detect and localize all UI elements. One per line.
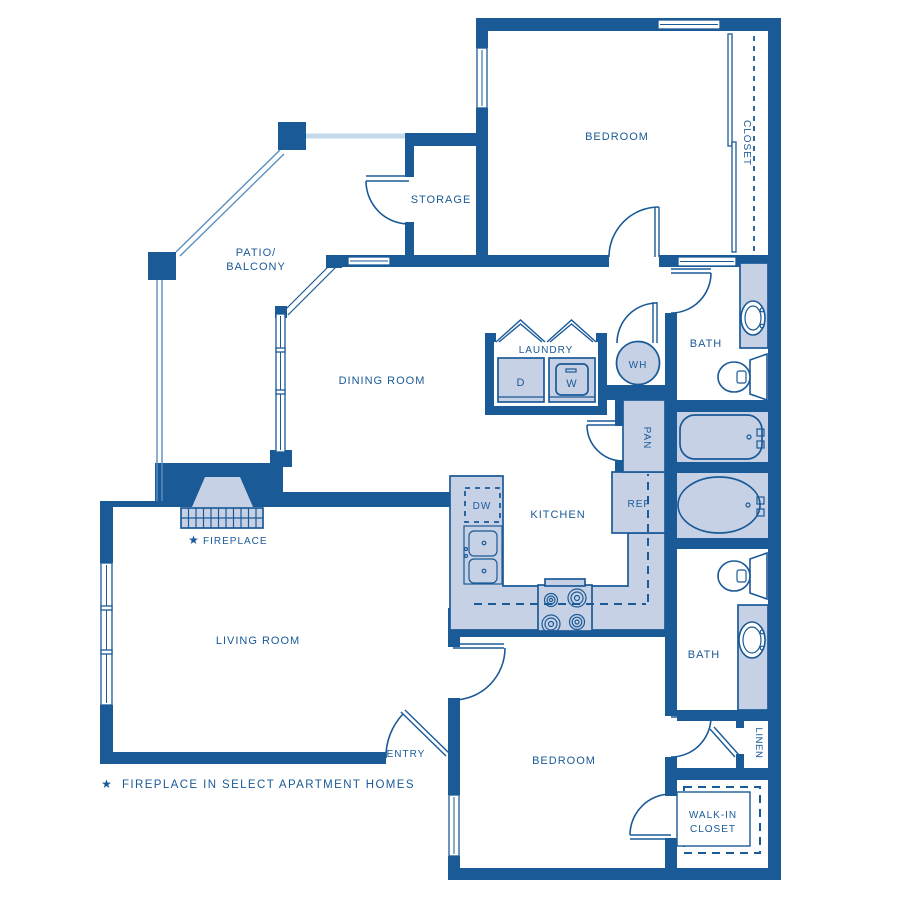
label-patio-line1: PATIO/ [236, 247, 276, 259]
window-storage [348, 257, 390, 265]
label-water-heater: WH [629, 360, 648, 371]
door-hall [617, 302, 657, 343]
patio-post [148, 252, 176, 280]
vanity-upper [740, 263, 768, 348]
footnote-text: FIREPLACE IN SELECT APARTMENT HOMES [122, 779, 415, 791]
label-pantry: PAN [641, 427, 652, 450]
toilet-lower-icon [718, 553, 767, 599]
floor-plan-canvas: BEDROOM CLOSET STORAGE PATIO/ BALCONY DI… [0, 0, 900, 900]
door-storage [366, 176, 409, 224]
label-bath-lower: BATH [688, 649, 721, 661]
door-bedroom-top [609, 207, 659, 257]
label-laundry: LAUNDRY [519, 345, 574, 356]
label-dryer: D [517, 377, 526, 389]
door-laundry-bifold [496, 320, 596, 342]
label-living-room: LIVING ROOM [216, 635, 300, 647]
window-dining-diagonal [284, 262, 337, 315]
fireplace-star-icon: ★ [188, 533, 200, 547]
fixtures [181, 263, 768, 853]
window-dining-left [276, 314, 285, 452]
floor-plan: BEDROOM CLOSET STORAGE PATIO/ BALCONY DI… [0, 0, 900, 900]
label-washer: W [566, 378, 577, 390]
garden-tub-icon [677, 473, 768, 538]
label-kitchen: KITCHEN [530, 509, 585, 521]
window-bedroom-bottom [449, 795, 459, 856]
patio-railing [176, 150, 280, 252]
window-bath-upper [678, 257, 736, 266]
window-bedroom-top [658, 20, 720, 29]
label-dishwasher: DW [473, 501, 492, 512]
patio-post [278, 122, 306, 150]
window-bedroom-top-left [477, 48, 487, 108]
footnote-star-icon: ★ [101, 777, 113, 791]
patio-railing [180, 154, 284, 256]
door-pantry [587, 421, 623, 461]
toilet-upper-icon [718, 354, 767, 400]
door-bedroom-bottom [453, 644, 505, 700]
stove-icon [538, 579, 592, 633]
label-bath-upper: BATH [690, 338, 723, 350]
label-patio-line2: BALCONY [226, 261, 286, 273]
window-living-left [101, 563, 112, 705]
label-dining-room: DINING ROOM [339, 375, 426, 387]
door-bath-upper [671, 269, 711, 313]
vanity-lower [738, 605, 768, 710]
door-walkin-closet [630, 794, 671, 839]
label-refrigerator: REF [628, 499, 651, 510]
label-entry: ENTRY [387, 749, 426, 760]
label-closet-top: CLOSET [741, 120, 752, 166]
label-walkin-line1: WALK-IN [689, 810, 737, 821]
label-fireplace: FIREPLACE [203, 536, 268, 547]
door-linen [710, 727, 739, 757]
label-bedroom-bottom: BEDROOM [532, 755, 596, 767]
label-linen: LINEN [753, 728, 764, 759]
label-walkin-line2: CLOSET [690, 824, 736, 835]
bathtub-icon [677, 412, 768, 462]
label-storage: STORAGE [411, 194, 472, 206]
label-bedroom-top: BEDROOM [585, 131, 649, 143]
